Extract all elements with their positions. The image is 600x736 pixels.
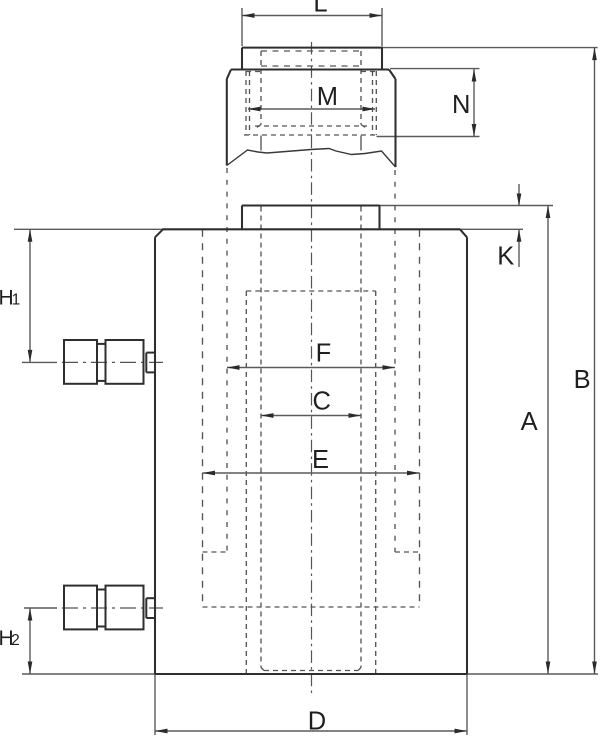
svg-text:F: F	[316, 340, 332, 368]
svg-text:A: A	[521, 408, 538, 436]
svg-text:C: C	[313, 388, 331, 416]
svg-text:K: K	[497, 243, 514, 271]
svg-text:E: E	[312, 446, 329, 474]
svg-text:M: M	[317, 83, 338, 111]
svg-text:D: D	[308, 708, 326, 736]
svg-text:N: N	[452, 91, 470, 119]
svg-text:L: L	[313, 0, 327, 18]
svg-text:H2: H2	[0, 627, 20, 650]
svg-text:H1: H1	[0, 287, 20, 310]
svg-text:B: B	[574, 366, 591, 394]
